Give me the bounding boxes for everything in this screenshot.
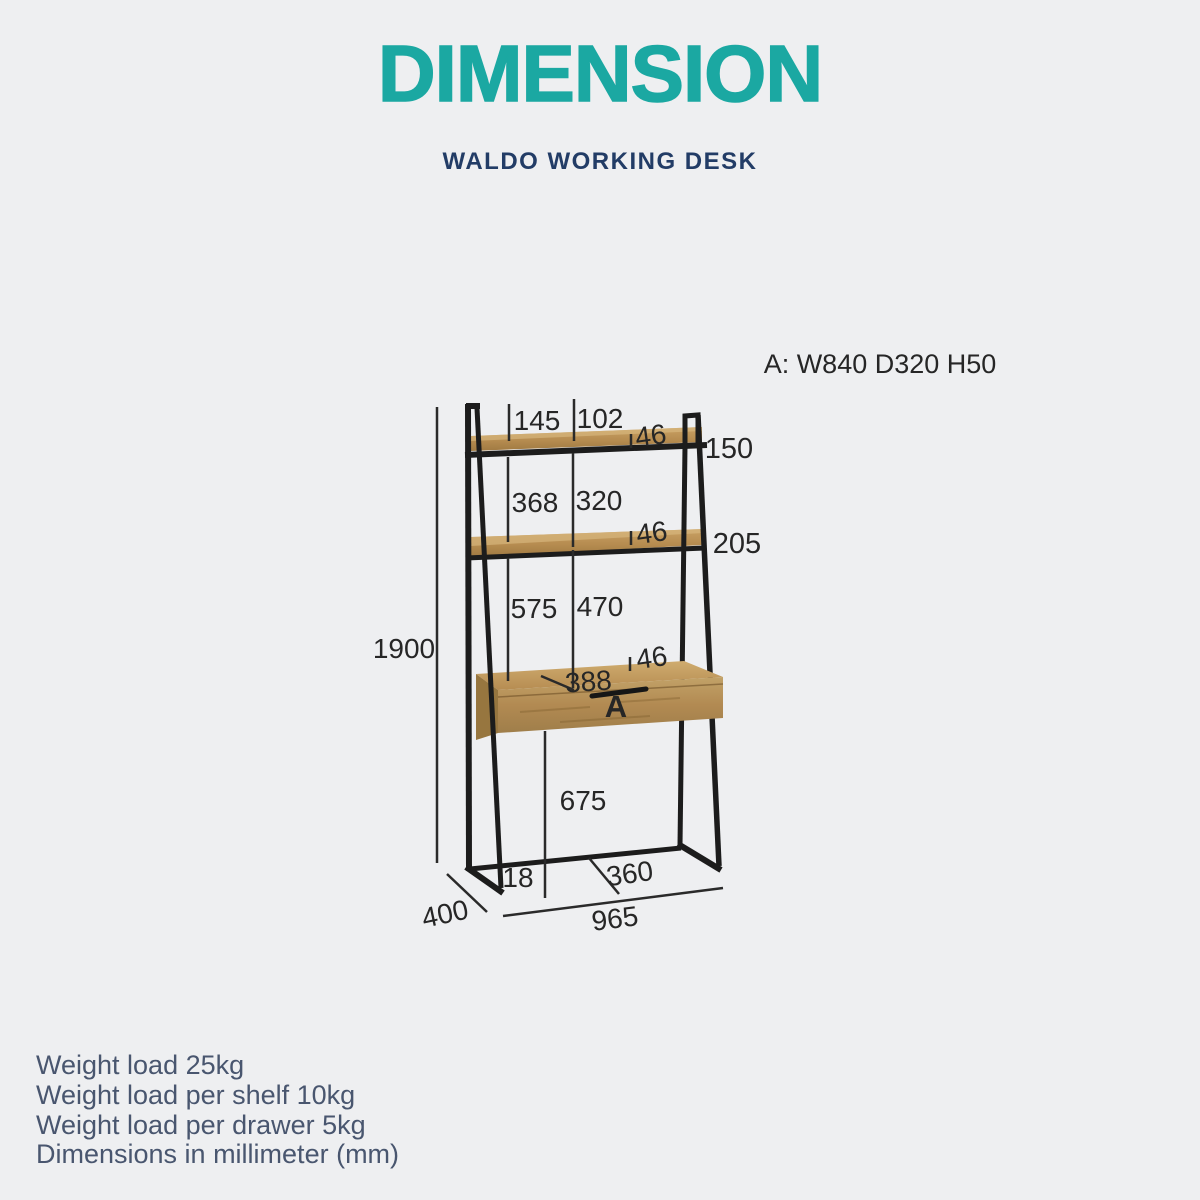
dim-label-46-top: 46 [633,418,668,453]
drawer-spec-label: A: W840 D320 H50 [764,349,997,379]
dim-label-360: 360 [604,855,655,892]
dim-label-400: 400 [419,894,471,934]
product-dimension-page: DIMENSION WALDO WORKING DESK [0,0,1200,1200]
dim-label-205: 205 [713,528,761,560]
left-front-leg [477,408,501,888]
dim-label-46-middle: 46 [634,515,669,550]
dim-label-675: 675 [560,785,607,816]
right-back-post [698,415,719,866]
dim-label-18: 18 [502,862,533,893]
desk-dimension-diagram: A: W840 D320 H50 145 102 46 150 368 320 … [0,0,1200,1200]
dim-label-368: 368 [512,487,559,518]
note-weight-per-drawer: Weight load per drawer 5kg [36,1111,399,1141]
dim-label-575: 575 [511,593,558,624]
drawer-a-label: A [605,689,627,724]
weight-load-notes: Weight load 25kg Weight load per shelf 1… [36,1051,399,1170]
dim-label-1900: 1900 [373,633,435,664]
note-weight-per-shelf: Weight load per shelf 10kg [36,1081,399,1111]
dim-label-470: 470 [577,591,624,622]
dim-label-102: 102 [577,403,624,434]
left-back-post [468,404,469,871]
dim-label-145: 145 [514,405,561,436]
dim-label-320: 320 [576,485,623,516]
left-foot [466,867,503,893]
note-weight-load: Weight load 25kg [36,1051,399,1081]
dim-label-46-desk: 46 [634,640,669,675]
right-foot [678,844,721,870]
note-units: Dimensions in millimeter (mm) [36,1140,399,1170]
dim-label-965: 965 [590,900,640,936]
metal-frame [465,404,721,893]
dim-label-150: 150 [705,433,753,465]
right-front-leg [680,446,685,846]
